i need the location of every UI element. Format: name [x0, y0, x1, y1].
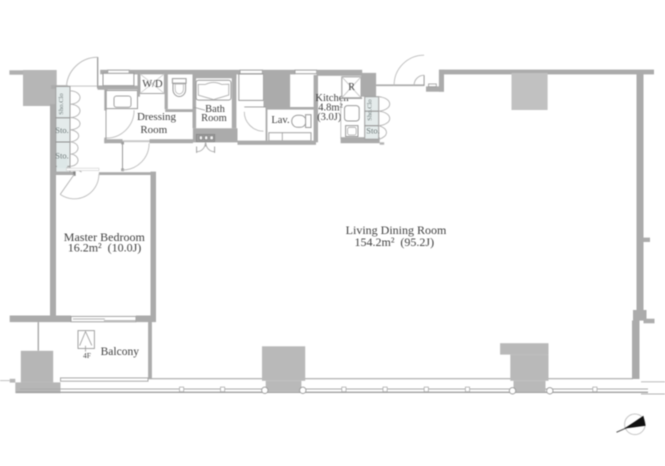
- svg-text:Sto.: Sto.: [55, 125, 68, 135]
- svg-text:4F: 4F: [83, 351, 91, 360]
- svg-text:Sto.: Sto.: [366, 125, 379, 135]
- svg-text:Room: Room: [140, 124, 167, 136]
- svg-text:Balcony: Balcony: [101, 346, 140, 358]
- svg-text:Dressing: Dressing: [137, 111, 177, 123]
- svg-text:R: R: [348, 82, 355, 93]
- svg-text:Lav.: Lav.: [271, 115, 289, 126]
- svg-text:16.2m² (10.0J): 16.2m² (10.0J): [68, 240, 142, 254]
- svg-text:Room: Room: [201, 113, 227, 124]
- svg-text:154.2m² (95.2J): 154.2m² (95.2J): [355, 235, 435, 249]
- svg-text:Sho.Clo: Sho.Clo: [58, 93, 65, 115]
- svg-text:Sho.Clo: Sho.Clo: [367, 99, 374, 121]
- svg-text:W/D: W/D: [142, 79, 163, 90]
- svg-text:(3.0J): (3.0J): [317, 112, 342, 123]
